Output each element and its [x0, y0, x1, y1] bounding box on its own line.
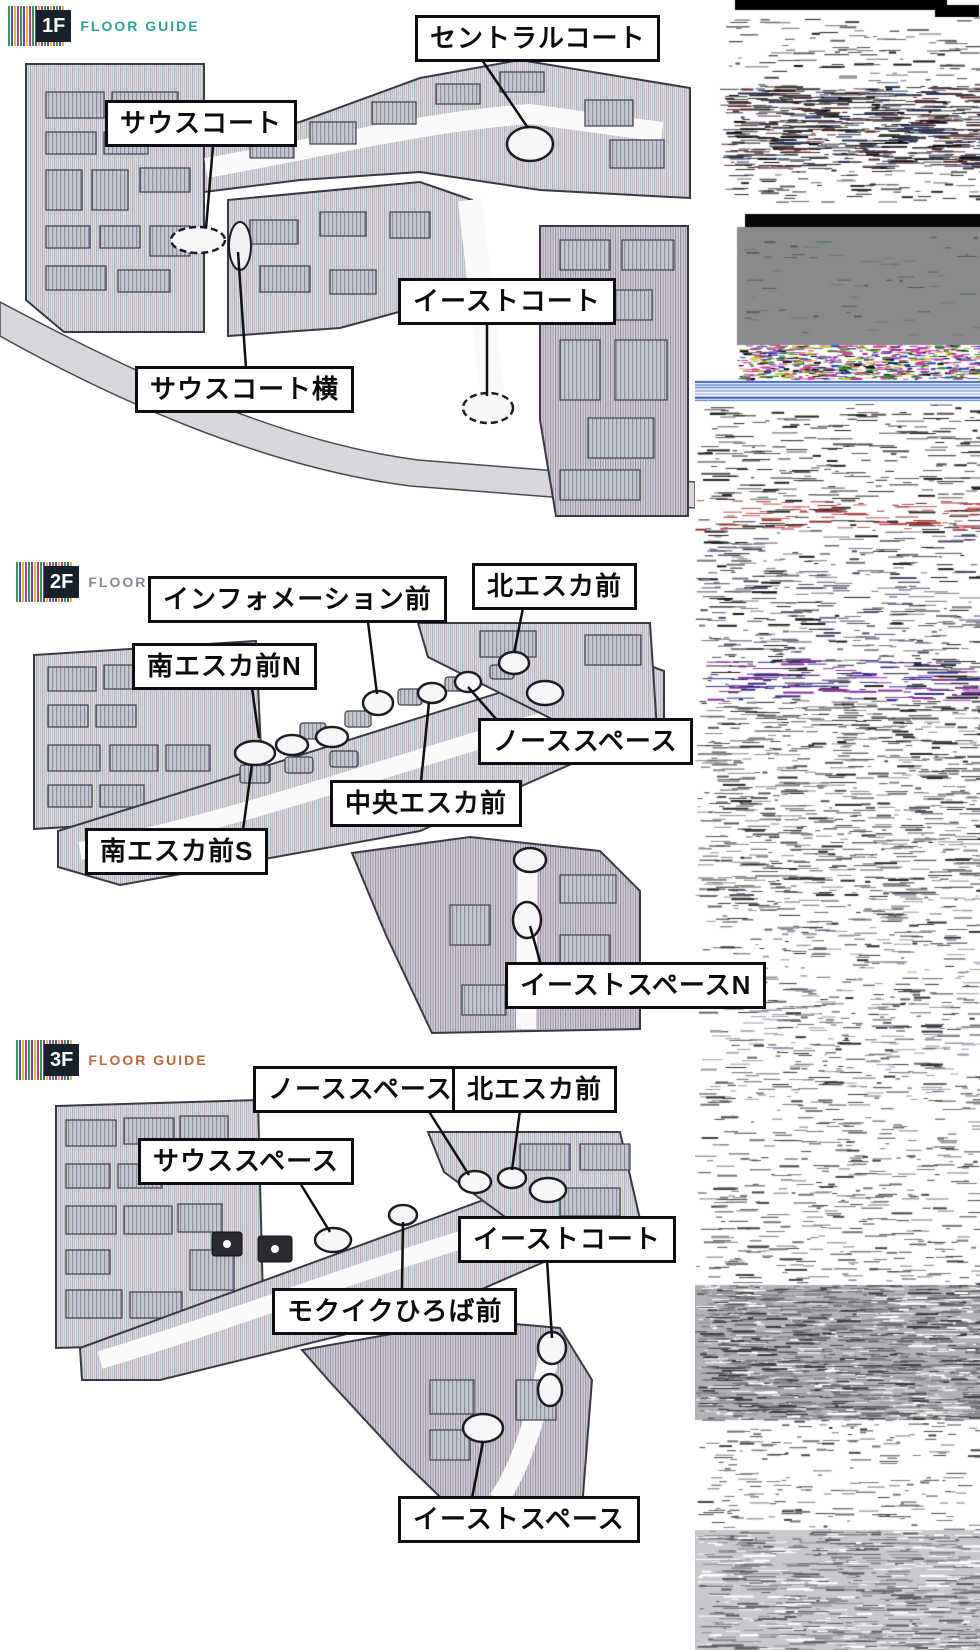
- map-label-north-space-2f: ノーススペース: [478, 718, 693, 765]
- map-label-south-court-side: サウスコート横: [135, 366, 354, 413]
- map-label-north-esca-front-2f: 北エスカ前: [472, 563, 637, 610]
- floor-number-badge-2f: 2F: [44, 566, 79, 598]
- location-oval-central-court: [507, 127, 553, 161]
- map-label-north-esca-front-3f: 北エスカ前: [452, 1066, 617, 1113]
- map-label-mokuiku-hiroba-front: モクイクひろば前: [272, 1288, 517, 1335]
- floor-guide-label-3f: FLOOR GUIDE: [88, 1052, 207, 1068]
- location-oval-south-court-side: [229, 222, 251, 270]
- corrupted-scan-panel: [695, 0, 980, 1650]
- floor-number-badge-3f: 3F: [44, 1044, 79, 1076]
- map-label-east-court-1f: イーストコート: [398, 278, 616, 325]
- map-label-south-esca-front-s: 南エスカ前S: [85, 828, 268, 875]
- map-label-north-space-3f: ノーススペース: [253, 1066, 468, 1113]
- floor-number-badge-1f: 1F: [36, 10, 71, 42]
- map-label-central-esca-front: 中央エスカ前: [330, 780, 522, 827]
- location-oval-south-court: [171, 227, 225, 253]
- map-label-south-court: サウスコート: [105, 100, 297, 147]
- floor-header-3f: 3F FLOOR GUIDE: [16, 1040, 208, 1080]
- location-oval-east-court: [463, 393, 513, 423]
- map-label-east-court-3f: イーストコート: [458, 1216, 676, 1263]
- map-label-information-front: インフォメーション前: [148, 576, 447, 623]
- floor-header-1f: 1F FLOOR GUIDE: [8, 6, 200, 46]
- map-label-east-space-n: イーストスペースN: [505, 962, 766, 1009]
- floor-guide-page: 1F FLOOR GUIDE 2F FLOOR GUIDE 3F FLOOR G…: [0, 0, 980, 1650]
- map-label-east-space: イーストスペース: [398, 1496, 640, 1543]
- map-label-central-court: セントラルコート: [415, 15, 660, 62]
- map-label-south-esca-front-n: 南エスカ前N: [132, 643, 317, 690]
- map-label-south-space: サウススペース: [138, 1138, 354, 1185]
- floor-guide-label-1f: FLOOR GUIDE: [80, 18, 199, 34]
